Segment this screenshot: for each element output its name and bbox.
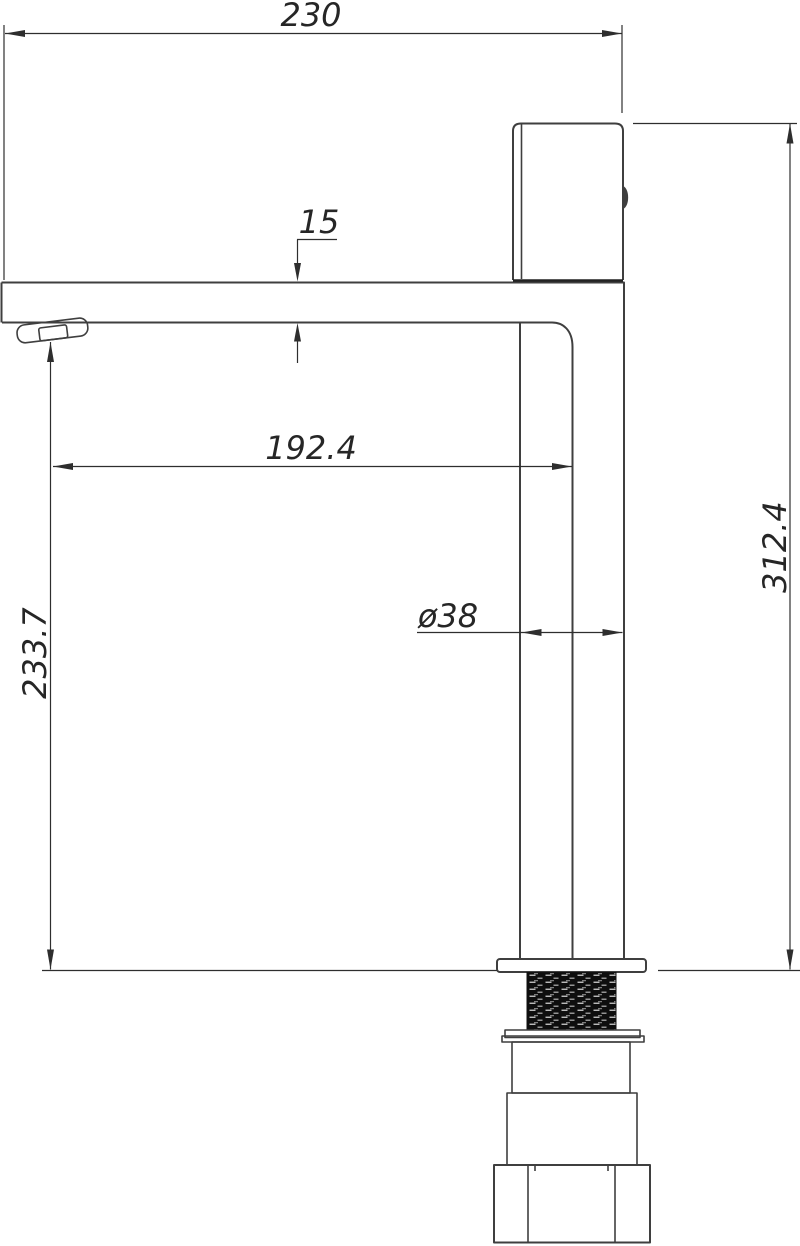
dim-233-label: 233.7: [16, 607, 54, 699]
dim-15-arrow-up: [294, 323, 301, 342]
dim-230-arrow-left: [5, 30, 25, 37]
fixing-block-lower: [507, 1093, 637, 1165]
dim-312-arrow-down: [787, 950, 794, 970]
dim-233-arrow-up: [47, 342, 54, 362]
base-flange: [497, 959, 646, 972]
spout-bottom-and-inner-body-edge: [2, 323, 573, 960]
dim-38-arrow-right: [603, 629, 623, 636]
dim-15-label: 15: [299, 203, 340, 241]
dim-38-arrow-left: [522, 629, 542, 636]
drawing-canvas: 230 15 192.4 ø38 233.7 312.4: [0, 0, 800, 1246]
spout-top-and-body-right-edge: [2, 283, 625, 960]
dim-15-arrow-down: [294, 263, 301, 282]
aerator-face: [39, 325, 68, 341]
dim-230-label: 230: [280, 0, 341, 34]
faucet-geometry: [2, 124, 651, 1243]
faucet-technical-drawing: 230 15 192.4 ø38 233.7 312.4: [0, 0, 800, 1246]
fixing-block-upper: [512, 1042, 630, 1093]
dim-312-label: 312.4: [756, 501, 794, 593]
mounting-nut: [494, 1165, 650, 1243]
dim-overall-height: 312.4: [633, 124, 797, 970]
handle-side-button: [623, 186, 628, 209]
dim-192-label: 192.4: [265, 429, 357, 467]
threaded-shank: [527, 973, 616, 1031]
handle-block-outline: [513, 124, 623, 281]
dim-230-arrow-right: [602, 30, 622, 37]
dim-spout-reach: 192.4: [53, 429, 572, 470]
dim-38-label: ø38: [417, 597, 478, 635]
dim-233-arrow-down: [47, 950, 54, 970]
dim-312-arrow-up: [787, 124, 794, 144]
dim-192-arrow-left: [53, 463, 73, 470]
dim-outlet-height: 233.7: [16, 342, 54, 970]
aerator-group: [16, 317, 89, 344]
dim-192-arrow-right: [552, 463, 572, 470]
